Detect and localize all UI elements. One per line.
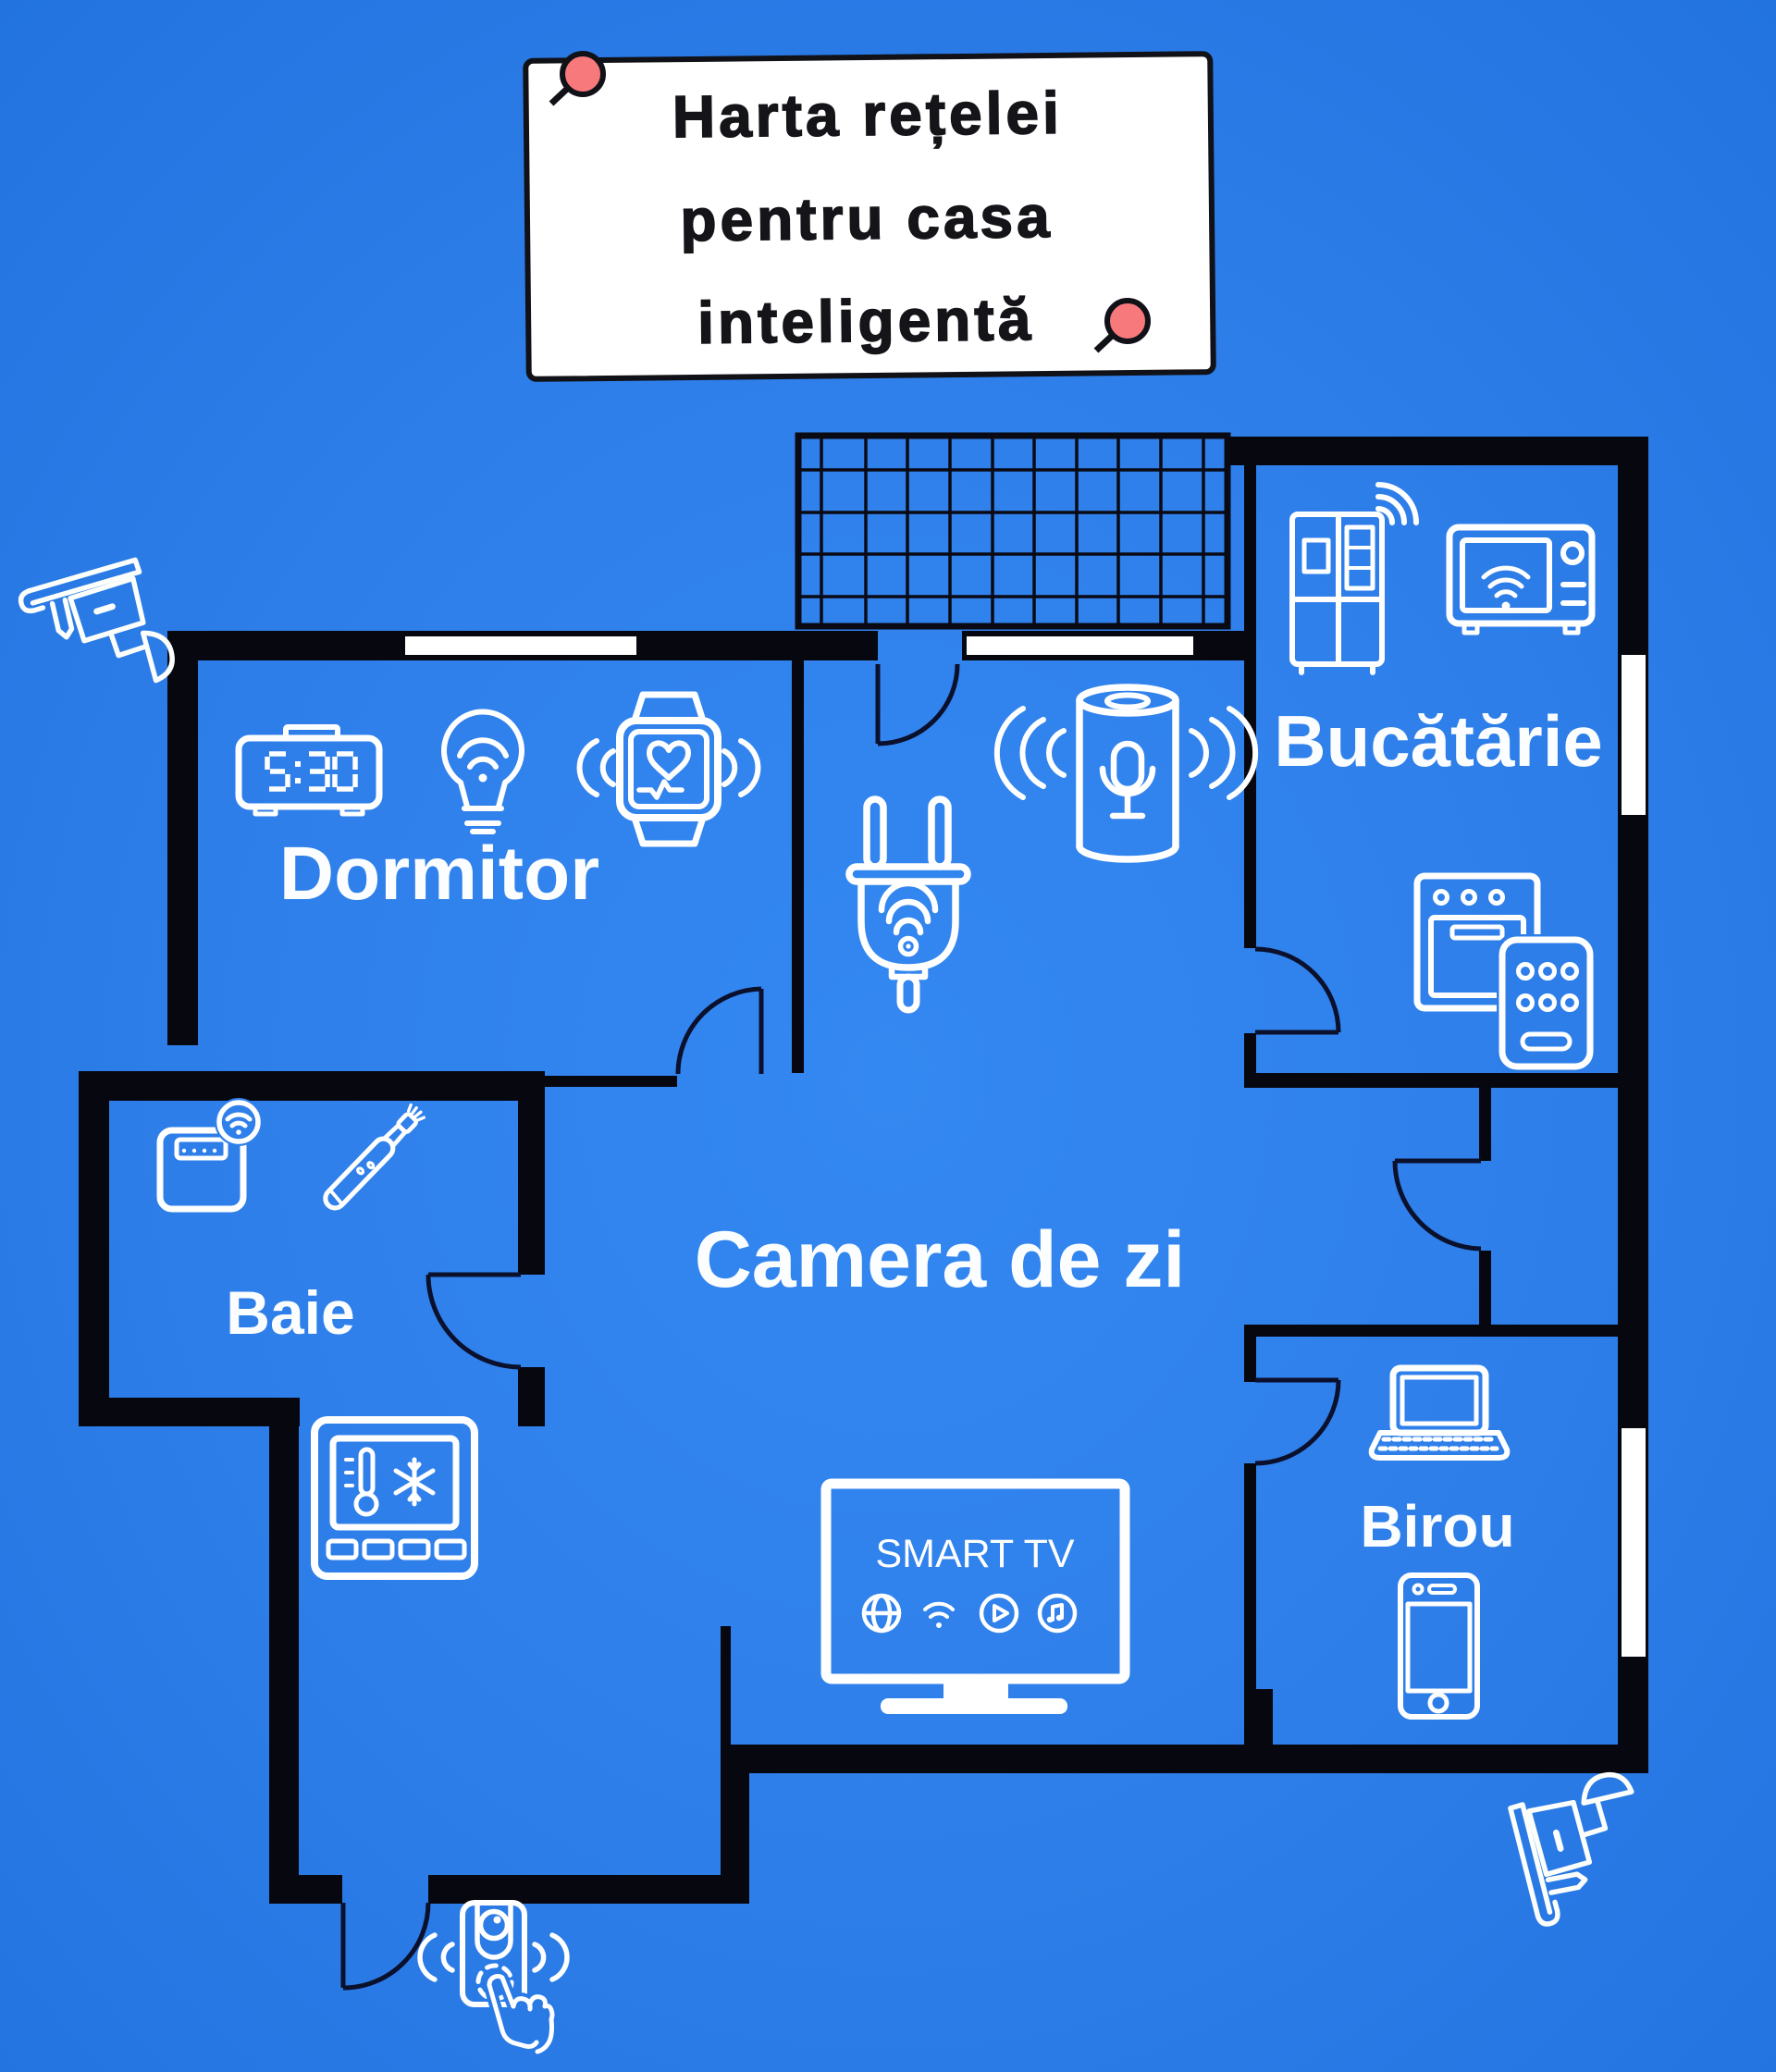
svg-text:Bucătărie: Bucătărie [1274,700,1603,782]
svg-text:Camera de zi: Camera de zi [695,1215,1186,1304]
svg-text:pentru casa: pentru casa [680,183,1054,253]
svg-text:SMART TV: SMART TV [875,1532,1074,1576]
svg-text:Harta rețelei: Harta rețelei [672,80,1063,151]
svg-text:inteligentă: inteligentă [697,286,1035,356]
svg-text:Birou: Birou [1360,1493,1514,1560]
svg-text:Baie: Baie [226,1278,354,1347]
svg-text:Dormitor: Dormitor [279,832,599,916]
